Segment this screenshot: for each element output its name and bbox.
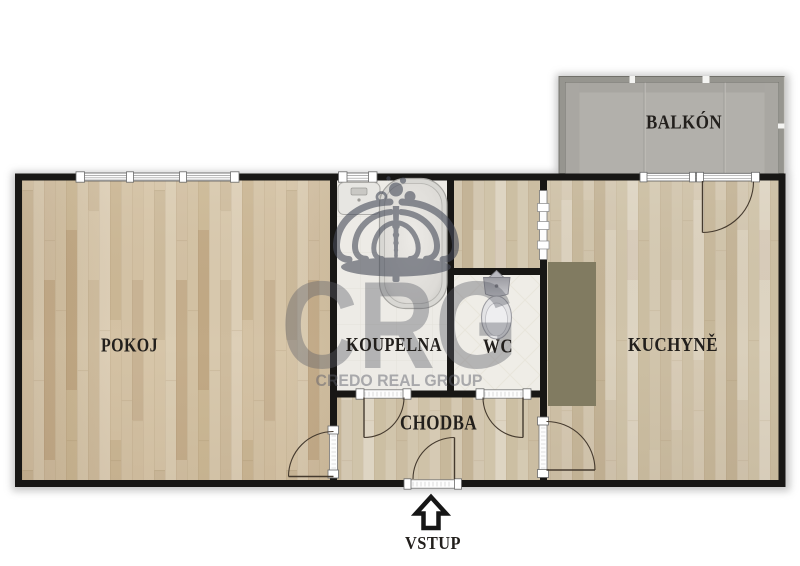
svg-text:BALKÓN: BALKÓN [646, 110, 722, 134]
svg-text:CREDO REAL GROUP: CREDO REAL GROUP [316, 371, 483, 390]
svg-text:KUCHYNĚ: KUCHYNĚ [628, 332, 718, 356]
svg-text:CHODBA: CHODBA [400, 411, 477, 435]
svg-text:POKOJ: POKOJ [101, 335, 158, 357]
svg-text:VSTUP: VSTUP [405, 533, 461, 553]
svg-text:WC: WC [483, 336, 513, 358]
svg-text:KOUPELNA: KOUPELNA [346, 334, 442, 356]
